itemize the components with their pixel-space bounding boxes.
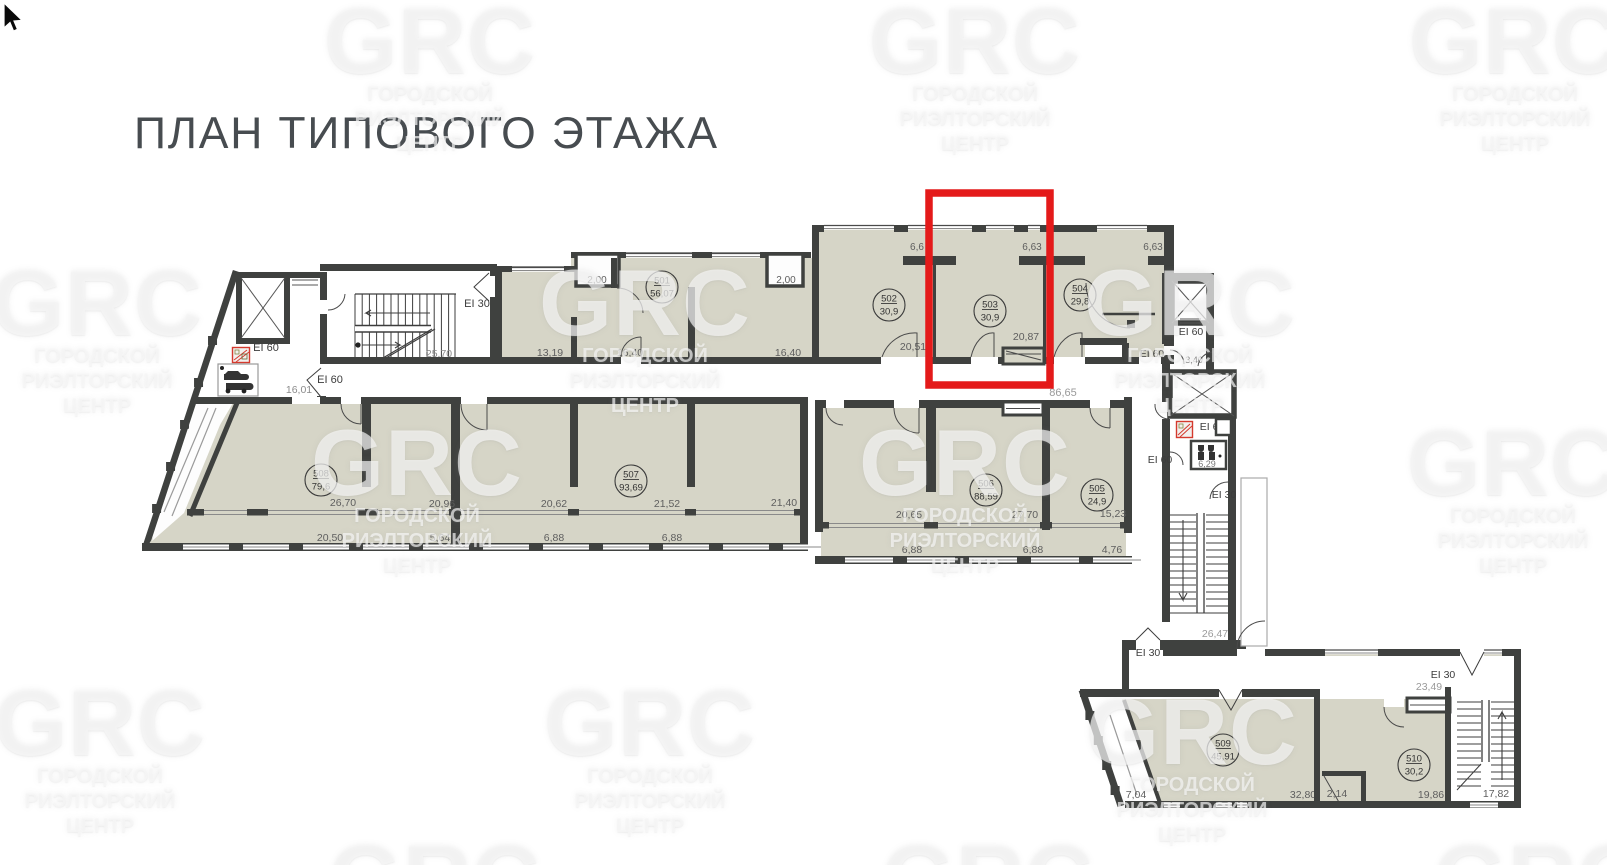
svg-text:32,80: 32,80	[1290, 789, 1316, 801]
svg-text:20,51: 20,51	[900, 341, 926, 353]
svg-text:7,04: 7,04	[1126, 789, 1147, 801]
svg-text:EI 30: EI 30	[1431, 669, 1456, 681]
svg-text:505: 505	[1089, 484, 1105, 495]
svg-text:29,8: 29,8	[1071, 297, 1090, 308]
svg-text:6,6: 6,6	[910, 242, 924, 253]
svg-text:EI 60: EI 60	[253, 342, 279, 354]
svg-text:26,47: 26,47	[1202, 628, 1228, 640]
svg-text:26,70: 26,70	[330, 497, 356, 509]
svg-text:21,40: 21,40	[771, 497, 797, 509]
svg-text:506: 506	[978, 479, 994, 490]
svg-text:EI 60: EI 60	[317, 374, 343, 386]
svg-text:17,82: 17,82	[1483, 788, 1509, 800]
svg-text:2,14: 2,14	[1327, 788, 1348, 800]
svg-text:EI 60: EI 60	[1179, 326, 1204, 338]
svg-text:EI 30: EI 30	[1136, 647, 1161, 659]
svg-text:20,87: 20,87	[1013, 331, 1039, 343]
svg-text:45,91: 45,91	[1211, 752, 1235, 763]
svg-text:21,52: 21,52	[654, 498, 680, 510]
svg-text:20,65: 20,65	[896, 509, 922, 521]
svg-text:30,2: 30,2	[1405, 767, 1424, 778]
svg-text:508: 508	[313, 469, 329, 480]
svg-text:6,88: 6,88	[1023, 544, 1044, 556]
svg-text:EI 30: EI 30	[1212, 489, 1237, 501]
svg-text:503: 503	[982, 300, 998, 311]
svg-text:20,96: 20,96	[429, 498, 455, 510]
svg-text:6,88: 6,88	[662, 532, 683, 544]
svg-text:86,65: 86,65	[1049, 387, 1077, 399]
svg-text:24,9: 24,9	[1088, 497, 1107, 508]
svg-text:EI 30: EI 30	[464, 298, 490, 310]
svg-text:2,00: 2,00	[776, 275, 796, 286]
svg-text:EI 60: EI 60	[1140, 348, 1165, 360]
svg-text:16,01: 16,01	[286, 384, 312, 396]
svg-text:509: 509	[1215, 739, 1231, 750]
svg-text:6,88: 6,88	[544, 532, 565, 544]
svg-text:79,6: 79,6	[312, 482, 331, 493]
svg-text:501: 501	[654, 276, 670, 287]
svg-text:6,88: 6,88	[902, 544, 923, 556]
svg-text:27,70: 27,70	[1012, 509, 1038, 521]
svg-text:2,00: 2,00	[587, 275, 607, 286]
svg-text:19,86: 19,86	[1418, 789, 1444, 801]
svg-text:23,49: 23,49	[1416, 681, 1442, 693]
svg-text:510: 510	[1406, 754, 1422, 765]
svg-text:15,23: 15,23	[1100, 508, 1126, 520]
svg-text:56,07: 56,07	[650, 289, 674, 300]
svg-text:6,29: 6,29	[1198, 459, 1216, 469]
svg-text:30,9: 30,9	[981, 313, 1000, 324]
svg-text:5,64: 5,64	[430, 532, 451, 544]
svg-text:6,63: 6,63	[1143, 242, 1163, 253]
svg-text:30,9: 30,9	[880, 307, 899, 318]
svg-text:93,69: 93,69	[619, 483, 643, 494]
svg-text:EI 60: EI 60	[1148, 454, 1173, 466]
svg-text:88,59: 88,59	[974, 492, 998, 503]
svg-text:507: 507	[623, 470, 639, 481]
svg-text:6,63: 6,63	[1022, 242, 1042, 253]
svg-text:502: 502	[881, 294, 897, 305]
svg-text:4,76: 4,76	[1102, 544, 1123, 556]
svg-text:20,62: 20,62	[541, 498, 567, 510]
svg-text:20,50: 20,50	[317, 532, 343, 544]
